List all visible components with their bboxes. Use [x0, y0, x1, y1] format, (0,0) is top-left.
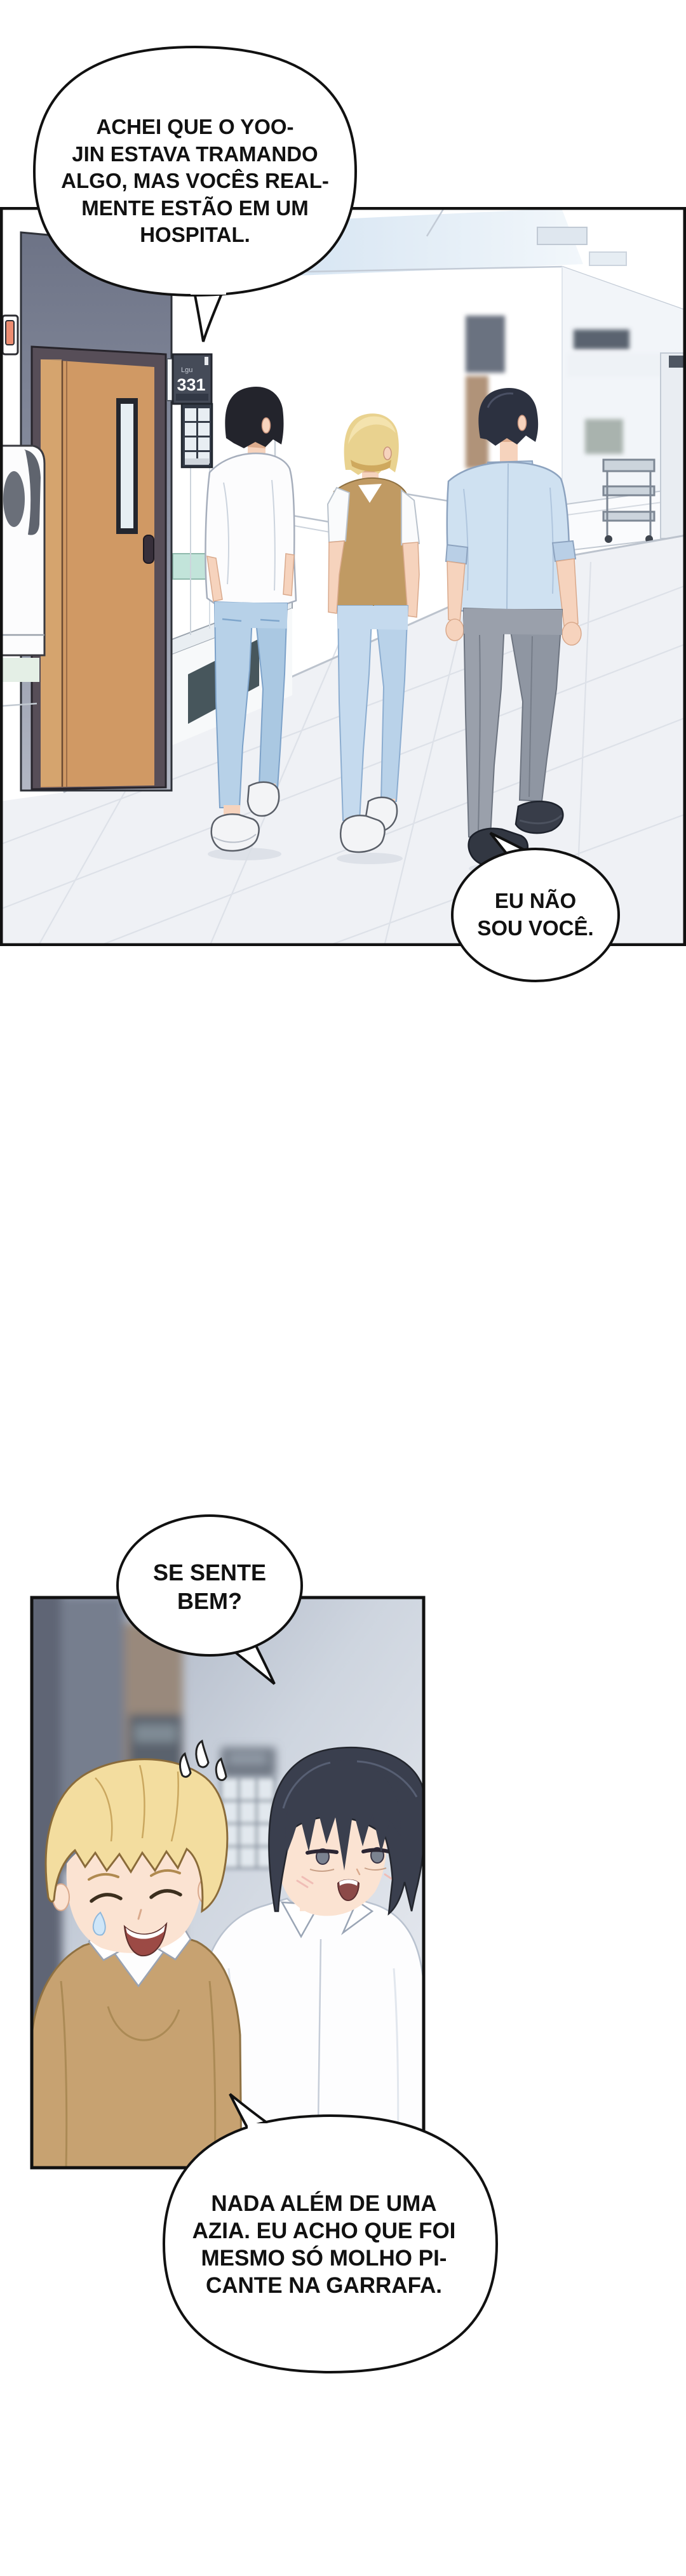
svg-text:CANTE NA GARRAFA.: CANTE NA GARRAFA. — [206, 2273, 442, 2298]
svg-text:MESMO SÓ MOLHO PI-: MESMO SÓ MOLHO PI- — [201, 2245, 447, 2271]
svg-text:ACHEI QUE O YOO-: ACHEI QUE O YOO- — [96, 115, 293, 138]
svg-text:MENTE ESTÃO EM UM: MENTE ESTÃO EM UM — [81, 196, 309, 220]
svg-text:HOSPITAL.: HOSPITAL. — [140, 223, 250, 246]
svg-text:BEM?: BEM? — [177, 1588, 242, 1614]
svg-text:NADA ALÉM DE UMA: NADA ALÉM DE UMA — [211, 2191, 436, 2216]
svg-text:AZIA. EU ACHO QUE FOI: AZIA. EU ACHO QUE FOI — [192, 2219, 456, 2243]
svg-text:ALGO, MAS VOCÊS REAL-: ALGO, MAS VOCÊS REAL- — [61, 169, 329, 192]
svg-text:EU NÃO: EU NÃO — [495, 889, 576, 912]
svg-text:Lgu: Lgu — [181, 366, 192, 374]
svg-text:SE SENTE: SE SENTE — [153, 1559, 266, 1585]
svg-text:SOU VOCÊ.: SOU VOCÊ. — [477, 916, 593, 940]
svg-text:331: 331 — [177, 375, 205, 394]
svg-text:JIN ESTAVA TRAMANDO: JIN ESTAVA TRAMANDO — [72, 142, 318, 166]
